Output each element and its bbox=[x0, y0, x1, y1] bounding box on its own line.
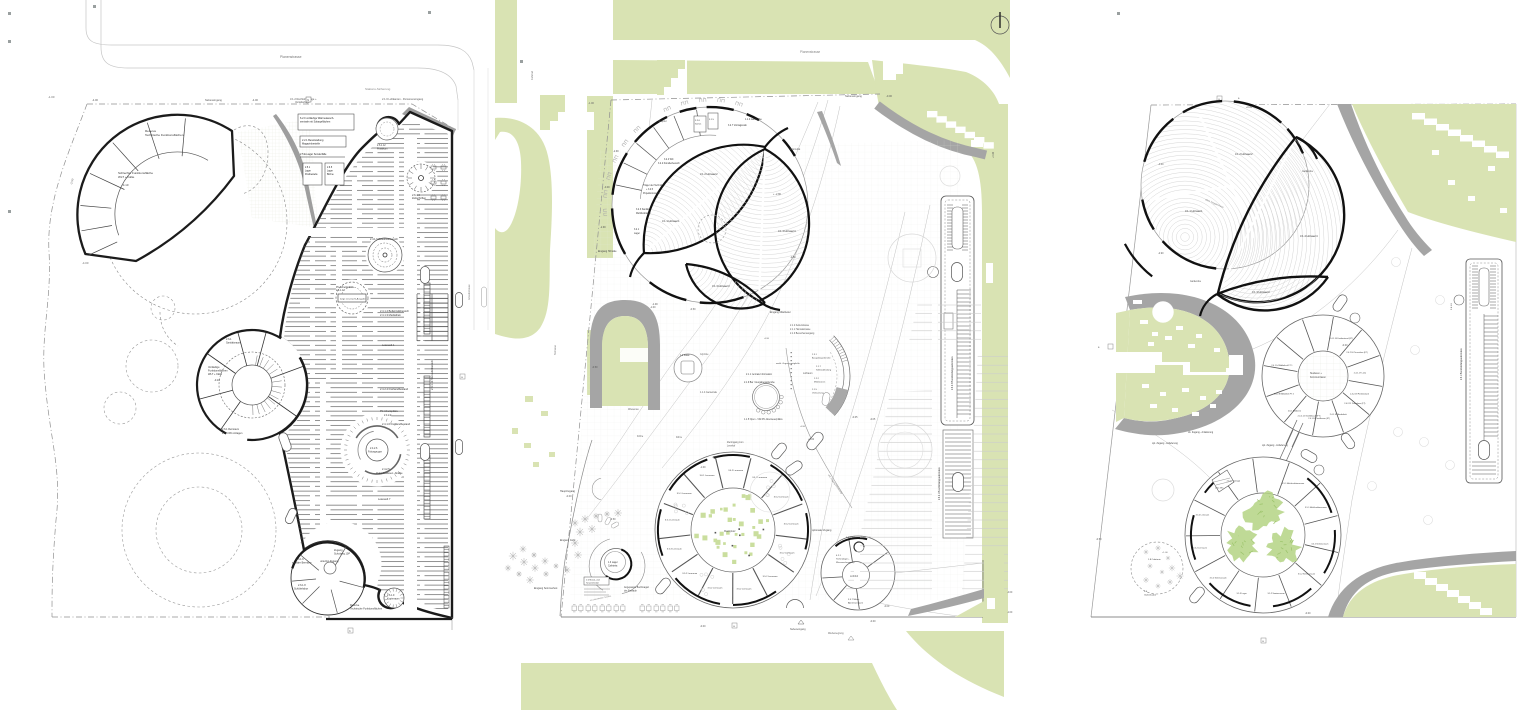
svg-text:-0.00: -0.00 bbox=[1342, 344, 1348, 347]
svg-text:3.1.2 Hörsaal 2: 3.1.2 Hörsaal 2 bbox=[1235, 152, 1253, 156]
svg-text:Angepasste Buchmagaz: Angepasste Buchmagaz bbox=[624, 586, 650, 589]
svg-text:-0.05: -0.05 bbox=[870, 419, 876, 421]
svg-text:+0.00: +0.00 bbox=[1246, 106, 1253, 109]
svg-text:-0.50: -0.50 bbox=[690, 308, 696, 311]
svg-text:Abenteuerraum: Abenteuerraum bbox=[848, 602, 863, 605]
svg-text:3.1.4 Hörsaal 4: 3.1.4 Hörsaal 4 bbox=[1300, 234, 1318, 238]
svg-text:1.8 Cafeteria: 1.8 Cafeteria bbox=[1148, 558, 1161, 561]
svg-text:-4.00: -4.00 bbox=[1158, 163, 1164, 166]
svg-text:-1.00: -1.00 bbox=[48, 95, 55, 99]
svg-text:Technische Funktionsflächen: Technische Funktionsflächen bbox=[350, 608, 383, 611]
svg-text:ob. Zugang - Anlieferung: ob. Zugang - Anlieferung bbox=[1188, 431, 1214, 434]
svg-text:2.1.9 Bar / Ausgabegarderobe: 2.1.9 Bar / Ausgabegarderobe bbox=[744, 381, 775, 384]
svg-text:Lesewelt 7: Lesewelt 7 bbox=[378, 497, 391, 501]
svg-text:Föhre: Föhre bbox=[637, 435, 644, 438]
svg-text:3.6.2 Lernraum: 3.6.2 Lernraum bbox=[728, 469, 743, 472]
svg-text:2.4.2.4 Freihandbestand: 2.4.2.4 Freihandbestand bbox=[380, 387, 409, 391]
svg-text:-4.00: -4.00 bbox=[252, 98, 258, 102]
svg-text:+ -2.80: + -2.80 bbox=[773, 193, 781, 196]
svg-text:2.3.1: 2.3.1 bbox=[812, 354, 818, 356]
svg-text:3.1.1 Hörsaal 1: 3.1.1 Hörsaal 1 bbox=[1185, 209, 1203, 213]
svg-text:+1.00: +1.00 bbox=[1162, 552, 1168, 554]
svg-text:Lager: Lager bbox=[327, 170, 333, 173]
svg-text:2.4.2.1 Beschickungsautomaten: 2.4.2.1 Beschickungsautomaten bbox=[938, 467, 941, 500]
svg-text:3.5.2 Lernraum: 3.5.2 Lernraum bbox=[1196, 515, 1210, 517]
svg-text:2.4.1.12: 2.4.1.12 bbox=[336, 289, 345, 292]
svg-text:3.5.1 Multifunktionsraum: 3.5.1 Multifunktionsraum bbox=[1305, 506, 1327, 509]
svg-text:optionaler Zugang: optionaler Zugang bbox=[812, 529, 832, 532]
svg-text:2.1.6 Luftkanten - Personenein: 2.1.6 Luftkanten - Personeneingang bbox=[382, 97, 424, 101]
svg-text:-0.00: -0.00 bbox=[1305, 612, 1311, 615]
svg-text:3.5.2 Lernraum: 3.5.2 Lernraum bbox=[763, 575, 778, 578]
svg-text:Technische Funktionsflächen: Technische Funktionsflächen bbox=[145, 133, 184, 137]
svg-text:-0.30: -0.30 bbox=[712, 457, 718, 459]
svg-text:3.1.5: 3.1.5 bbox=[709, 119, 715, 121]
svg-text:Vorläufige: Vorläufige bbox=[208, 365, 220, 369]
svg-text:2.4.1.6 Belletristikbereich: 2.4.1.6 Belletristikbereich bbox=[370, 238, 399, 241]
svg-text:Semin: Semin bbox=[695, 124, 702, 126]
svg-text:3.1.4 Hörsaal 4: 3.1.4 Hörsaal 4 bbox=[778, 229, 796, 233]
svg-text:opt. Zugang - Anlieferung: opt. Zugang - Anlieferung bbox=[1152, 442, 1179, 445]
svg-text:-2.90: -2.90 bbox=[613, 150, 619, 153]
svg-text:3.5.7 Mikro-: 3.5.7 Mikro- bbox=[848, 598, 860, 601]
svg-text:3.5.1 Lernraum: 3.5.1 Lernraum bbox=[752, 476, 767, 479]
svg-text:-1.00: -1.00 bbox=[1007, 612, 1013, 614]
svg-text:Lager: Lager bbox=[305, 170, 311, 173]
svg-text:2.2.2: 2.2.2 bbox=[814, 378, 820, 380]
svg-text:2.4.2.7: 2.4.2.7 bbox=[384, 414, 392, 417]
svg-text:-2.30: -2.30 bbox=[790, 256, 796, 259]
svg-text:Zeitschriften: Zeitschriften bbox=[412, 196, 427, 200]
svg-text:1.6 Musik- und: 1.6 Musik- und bbox=[586, 580, 600, 582]
svg-text:3.1.3 Hörsaal 3: 3.1.3 Hörsaal 3 bbox=[712, 284, 730, 288]
svg-text:+0.00: +0.00 bbox=[808, 438, 815, 441]
svg-text:2.5 E-Lager Sonderfälle: 2.5 E-Lager Sonderfälle bbox=[300, 153, 327, 156]
svg-text:2.4.1.4 Belletristikbereich: 2.4.1.4 Belletristikbereich bbox=[380, 309, 410, 313]
svg-text:3.2.2 Künstlerbereich: 3.2.2 Künstlerbereich bbox=[658, 162, 680, 165]
svg-text:3.5.2 Lernraum: 3.5.2 Lernraum bbox=[780, 552, 795, 555]
svg-text:3.6.1 Lernraum: 3.6.1 Lernraum bbox=[700, 474, 715, 477]
svg-text:Ausgabegarderobe: Ausgabegarderobe bbox=[812, 357, 831, 360]
svg-text:2.6.5: 2.6.5 bbox=[327, 167, 333, 169]
svg-text:2.4.2.12 Großlebauhr(FT): 2.4.2.12 Großlebauhr(FT) bbox=[1298, 416, 1321, 418]
svg-text:3.5.2 Lernraum: 3.5.2 Lernraum bbox=[774, 495, 789, 498]
svg-text:Schülerlabor: Schülerlabor bbox=[294, 588, 308, 591]
svg-text:WLT + Kälte: WLT + Kälte bbox=[208, 372, 223, 376]
svg-text:2.4.1.13 Sitzstufenbereich: 2.4.1.13 Sitzstufenbereich bbox=[430, 359, 434, 390]
svg-text:3.5.2 Lernraum: 3.5.2 Lernraum bbox=[708, 587, 723, 590]
svg-text:Gartenlaube: Gartenlaube bbox=[1144, 594, 1157, 597]
svg-text:WLT + Kälte: WLT + Kälte bbox=[118, 175, 135, 179]
svg-text:-0.00: -0.00 bbox=[870, 620, 876, 623]
svg-text:Eingang Sommerfest: Eingang Sommerfest bbox=[534, 587, 558, 590]
svg-text:Selbstabholung: Selbstabholung bbox=[816, 369, 832, 372]
svg-text:Luftraum: Luftraum bbox=[803, 372, 812, 375]
svg-text:2.5.4 WC-Anlagen: 2.5.4 WC-Anlagen bbox=[222, 432, 243, 435]
svg-text:Kommunizieren: Kommunizieren bbox=[1310, 376, 1327, 379]
svg-text:Hauptzugang: Hauptzugang bbox=[560, 490, 575, 493]
svg-text:2.4.2.16 Terrasfass (FT): 2.4.2.16 Terrasfass (FT) bbox=[1346, 352, 1368, 354]
svg-text:1.1 Kiosk: 1.1 Kiosk bbox=[680, 355, 690, 357]
svg-text:3.5.2 Lernraum: 3.5.2 Lernraum bbox=[784, 523, 799, 526]
svg-text:Mittelzonen: Mittelzonen bbox=[814, 381, 826, 384]
svg-text:Tanzwerkstatt: Tanzwerkstatt bbox=[586, 582, 599, 585]
svg-text:Zierimgang zum: Zierimgang zum bbox=[727, 441, 744, 444]
svg-text:Zukunftswissen -Ablage: Zukunftswissen -Ablage bbox=[376, 472, 403, 475]
svg-text:2.6.1 Rotbeere: 2.6.1 Rotbeere bbox=[1288, 409, 1302, 412]
svg-text:Skulptur: Skulptur bbox=[658, 120, 667, 123]
svg-text:2.4.1.17 Lotto: 2.4.1.17 Lotto bbox=[1354, 371, 1367, 374]
svg-text:2.4.2.5: 2.4.2.5 bbox=[382, 468, 390, 471]
svg-text:2.6.1 Reinraum: 2.6.1 Reinraum bbox=[222, 428, 239, 431]
svg-text:Glyzinie: Glyzinie bbox=[700, 353, 709, 356]
svg-text:3.5.2 Seminarraum: 3.5.2 Seminarraum bbox=[1298, 574, 1315, 576]
svg-text:-0.90: -0.90 bbox=[800, 426, 806, 428]
svg-text:2.6.1 WC: 2.6.1 WC bbox=[1215, 488, 1224, 490]
svg-text:2.1.2 Kellerstrasse: 2.1.2 Kellerstrasse bbox=[790, 324, 810, 327]
svg-text:Fahrrad: Fahrrad bbox=[530, 70, 534, 80]
svg-text:unterird. Zugang: unterird. Zugang bbox=[320, 560, 339, 563]
svg-text:Föhre: Föhre bbox=[676, 436, 683, 439]
svg-text:2.4.1.10 Mediathek: 2.4.1.10 Mediathek bbox=[1330, 413, 1347, 416]
svg-text:2.4.1 Bereitstellungsautomaten: 2.4.1 Bereitstellungsautomaten bbox=[1460, 348, 1463, 380]
svg-text:Sanitätsraum: Sanitätsraum bbox=[226, 342, 241, 345]
svg-text:-2.90: -2.90 bbox=[600, 226, 606, 229]
svg-text:-0.00: -0.00 bbox=[566, 495, 572, 498]
svg-text:2.4.2.18 Festbestand: 2.4.2.18 Festbestand bbox=[1350, 393, 1369, 396]
svg-text:2.1.7: 2.1.7 bbox=[816, 366, 822, 368]
svg-text:Cafeteria: Cafeteria bbox=[608, 565, 618, 568]
svg-text:1.1.4 Garderobe: 1.1.4 Garderobe bbox=[745, 118, 762, 121]
svg-text:-2.90: -2.90 bbox=[1158, 252, 1164, 255]
svg-text:4.2.1: 4.2.1 bbox=[836, 555, 842, 557]
svg-text:Nebeneingang: Nebeneingang bbox=[790, 628, 806, 631]
svg-text:Garderobe: Garderobe bbox=[1302, 170, 1314, 173]
svg-text:Eingang Hörsäle: Eingang Hörsäle bbox=[598, 250, 617, 253]
svg-text:-0.00: -0.00 bbox=[886, 94, 892, 98]
svg-text:3.2.6: 3.2.6 bbox=[695, 120, 701, 122]
svg-text:lange Lesenacht-Ausgabe: lange Lesenacht-Ausgabe bbox=[340, 298, 366, 301]
svg-text:Postbestelle: Postbestelle bbox=[305, 173, 318, 176]
svg-text:-4.10: -4.10 bbox=[122, 183, 129, 187]
svg-text:Planenstrasse: Planenstrasse bbox=[280, 55, 302, 59]
svg-text:2.5.1: 2.5.1 bbox=[305, 167, 311, 169]
svg-text:Lesehof: Lesehof bbox=[727, 446, 736, 448]
svg-text:Projektionsraum: Projektionsraum bbox=[643, 192, 660, 195]
svg-text:PC-Arbeitsplätze: PC-Arbeitsplätze bbox=[380, 410, 399, 413]
svg-text:opt. Zugang - Anlieferung: opt. Zugang - Anlieferung bbox=[1262, 444, 1289, 447]
svg-text:N: N bbox=[307, 98, 309, 102]
svg-text:2.4.2.3 Bereitstellungsautomat: 2.4.2.3 Bereitstellungsautomaten bbox=[951, 356, 954, 390]
svg-text:3.5.2 Lernraum: 3.5.2 Lernraum bbox=[1193, 548, 1207, 550]
svg-text:Bühne: Bühne bbox=[327, 174, 334, 176]
svg-text:-0.50: -0.50 bbox=[610, 518, 616, 521]
svg-text:-0.10: -0.10 bbox=[214, 379, 220, 382]
svg-text:-0.00: -0.00 bbox=[700, 625, 706, 628]
svg-text:Nebeneingang: Nebeneingang bbox=[845, 94, 862, 98]
svg-text:-0.00: -0.00 bbox=[884, 606, 890, 608]
svg-text:-0.05: -0.05 bbox=[852, 416, 858, 419]
svg-text:Wissenschnuppern: Wissenschnuppern bbox=[836, 561, 855, 564]
svg-text:1.1.5 Open - VR/-PC-Abenteuerp: 1.1.5 Open - VR/-PC-Abenteuerplätze bbox=[744, 418, 783, 421]
svg-text:2.4.1.9: 2.4.1.9 bbox=[1451, 303, 1453, 310]
svg-text:Multifunktional: Multifunktional bbox=[636, 212, 651, 215]
svg-text:3.5.2 Lernraum: 3.5.2 Lernraum bbox=[737, 588, 752, 591]
svg-text:-1.00: -1.00 bbox=[700, 466, 706, 469]
svg-text:-1.00: -1.00 bbox=[588, 101, 594, 105]
svg-text:2.5.1 Putzregal: 2.5.1 Putzregal bbox=[1227, 480, 1241, 483]
svg-text:2.4.1.3 Mediathek: 2.4.1.3 Mediathek bbox=[380, 313, 401, 317]
svg-text:Magazinbestelle: Magazinbestelle bbox=[302, 143, 321, 146]
svg-text:3.5.1 Lernraum: 3.5.1 Lernraum bbox=[665, 519, 680, 522]
svg-text:1.1.4 Gemeinde: 1.1.4 Gemeinde bbox=[700, 391, 718, 394]
svg-text:3.1.2 Hörsaal 2: 3.1.2 Hörsaal 2 bbox=[700, 172, 718, 176]
svg-text:Wiesenau: Wiesenau bbox=[628, 408, 639, 411]
svg-text:3.2.7 Vortragscafé: 3.2.7 Vortragscafé bbox=[728, 124, 747, 127]
svg-text:3.5.3 Lager: 3.5.3 Lager bbox=[1237, 593, 1247, 595]
svg-text:3.1.1 Hörsaal 1: 3.1.1 Hörsaal 1 bbox=[662, 219, 680, 223]
svg-text:-4.00: -4.00 bbox=[1007, 592, 1013, 594]
svg-text:zentrale mit Solargeflächen: zentrale mit Solargeflächen bbox=[300, 121, 331, 124]
svg-text:2.4.1.14 Festbestand (FT): 2.4.1.14 Festbestand (FT) bbox=[1330, 337, 1353, 340]
svg-text:3.5.2 Seminarraum: 3.5.2 Seminarraum bbox=[1210, 577, 1227, 579]
svg-text:der Fassade: der Fassade bbox=[624, 590, 637, 593]
svg-text:2.4.2.8 Bibliothek FT 2: 2.4.2.8 Bibliothek FT 2 bbox=[1274, 393, 1295, 396]
svg-text:1.3 Lager: 1.3 Lager bbox=[608, 561, 618, 564]
svg-text:-0.90: -0.90 bbox=[764, 338, 770, 340]
svg-text:2.1.5: 2.1.5 bbox=[812, 389, 818, 391]
svg-text:3.5.2 Seminarraum: 3.5.2 Seminarraum bbox=[1268, 593, 1285, 595]
svg-text:Nebeneingang: Nebeneingang bbox=[205, 98, 222, 102]
svg-text:Wiebersegrung: Wiebersegrung bbox=[828, 632, 844, 635]
svg-text:Fokusgruppe: Fokusgruppe bbox=[368, 451, 383, 454]
svg-text:3.2.1: 3.2.1 bbox=[634, 229, 640, 231]
svg-text:3.5.1 Mehrfunktionsraum: 3.5.1 Mehrfunktionsraum bbox=[1282, 482, 1304, 485]
svg-text:3.5.3 Lernraum: 3.5.3 Lernraum bbox=[667, 548, 682, 551]
svg-text:3.5.2 Seminarraum: 3.5.2 Seminarraum bbox=[1311, 543, 1328, 545]
svg-text:Schulweg 10P: Schulweg 10P bbox=[334, 553, 350, 556]
svg-text:sanitäre Bereiche: sanitäre Bereiche bbox=[292, 562, 312, 565]
svg-text:-0.50: -0.50 bbox=[592, 366, 598, 369]
svg-text:Terrasse: Terrasse bbox=[553, 344, 557, 355]
svg-text:Funktionsflächen: Funktionsflächen bbox=[208, 369, 228, 373]
svg-text:Garderobe: Garderobe bbox=[1190, 280, 1202, 283]
svg-text:2.4.2.11 Terrasfass (FT): 2.4.2.11 Terrasfass (FT) bbox=[1344, 403, 1365, 405]
svg-text:Marktplatz: Marktplatz bbox=[724, 530, 736, 533]
svg-text:-0.00: -0.00 bbox=[604, 186, 610, 189]
svg-text:2.4.1.14 Bibliothek FT 1: 2.4.1.14 Bibliothek FT 1 bbox=[1271, 364, 1293, 367]
svg-text:Technologie +: Technologie + bbox=[836, 559, 850, 561]
svg-text:-0.50: -0.50 bbox=[1096, 538, 1102, 541]
svg-text:Grondstrasse: Grondstrasse bbox=[467, 284, 471, 300]
svg-text:3.2.4 WC: 3.2.4 WC bbox=[664, 159, 674, 161]
svg-text:Stations-Sicherung: Stations-Sicherung bbox=[365, 87, 391, 91]
svg-text:3.5.2 Lernraum: 3.5.2 Lernraum bbox=[682, 572, 697, 575]
svg-text:+4.00: +4.00 bbox=[992, 151, 995, 158]
svg-text:Praktikum: Praktikum bbox=[377, 148, 388, 151]
svg-text:3.1.3 Hörsaal 3: 3.1.3 Hörsaal 3 bbox=[1252, 290, 1270, 294]
svg-text:3.2.3 Sanität /: 3.2.3 Sanität / bbox=[636, 208, 651, 211]
svg-text:3.5.1 Lernraum: 3.5.1 Lernraum bbox=[677, 492, 692, 495]
svg-text:Kopierraum: Kopierraum bbox=[387, 598, 399, 601]
svg-text:Träger der Technik: Träger der Technik bbox=[643, 184, 663, 187]
svg-text:2.1.1 zentrale Information: 2.1.1 zentrale Information bbox=[746, 373, 773, 376]
svg-text:+ 3.2.5: + 3.2.5 bbox=[646, 189, 654, 191]
svg-text:-1.00: -1.00 bbox=[650, 306, 656, 309]
svg-text:-4.00: -4.00 bbox=[82, 261, 89, 265]
svg-text:Verbuchung: Verbuchung bbox=[812, 392, 824, 395]
svg-text:Planenstrasse: Planenstrasse bbox=[800, 50, 820, 54]
svg-text:2.1.1 Heimatstrasse: 2.1.1 Heimatstrasse bbox=[790, 328, 811, 331]
svg-text:Lager: Lager bbox=[634, 232, 640, 235]
svg-text:Studieren +: Studieren + bbox=[1310, 372, 1322, 375]
svg-text:Lesewelt 1: Lesewelt 1 bbox=[382, 343, 395, 347]
svg-text:Eingang Mitarbeiter: Eingang Mitarbeiter bbox=[770, 311, 791, 314]
svg-text:Wurzelrat: Wurzelrat bbox=[790, 148, 801, 151]
svg-text:-4.00: -4.00 bbox=[92, 98, 98, 102]
svg-text:2.4.1.6 Freihandbestand: 2.4.1.6 Freihandbestand bbox=[382, 422, 411, 426]
svg-text:2.1.0 Besucherausgang: 2.1.0 Besucherausgang bbox=[790, 332, 815, 335]
